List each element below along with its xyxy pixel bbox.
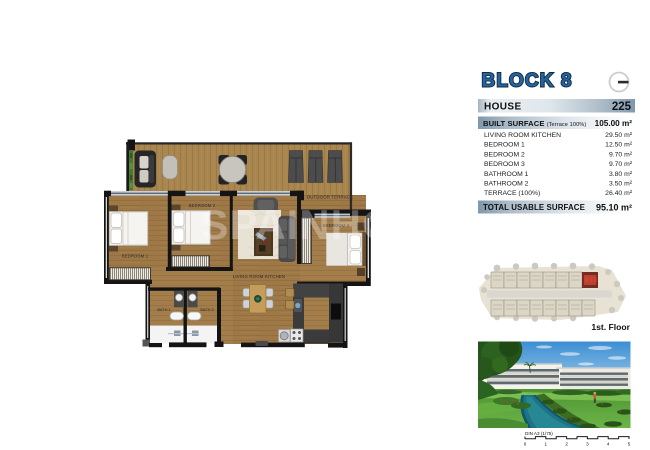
svg-text:OUTDOOR TERRACE: OUTDOOR TERRACE <box>307 195 354 200</box>
svg-text:225: 225 <box>612 101 632 113</box>
svg-text:9.70 m²: 9.70 m² <box>609 151 633 158</box>
svg-text:LIVING ROOM KITCHEN: LIVING ROOM KITCHEN <box>233 274 286 279</box>
svg-text:0: 0 <box>524 442 527 447</box>
svg-text:29.50 m²: 29.50 m² <box>605 132 633 139</box>
svg-text:26.40 m²: 26.40 m² <box>605 190 633 197</box>
svg-text:SPAINHO: SPAINHO <box>200 201 395 248</box>
svg-text:95.10 m²: 95.10 m² <box>596 203 632 213</box>
svg-text:BEDROOM 1: BEDROOM 1 <box>122 254 149 259</box>
svg-text:3.50 m²: 3.50 m² <box>609 181 633 188</box>
svg-text:BATH 2: BATH 2 <box>200 307 213 312</box>
svg-text:3: 3 <box>586 442 589 447</box>
svg-text:9.70 m²: 9.70 m² <box>609 161 633 168</box>
svg-text:BLOCK 8: BLOCK 8 <box>482 71 573 92</box>
svg-text:3.80 m²: 3.80 m² <box>609 171 633 178</box>
svg-text:BATH 1: BATH 1 <box>157 307 170 312</box>
svg-text:BEDROOM 1: BEDROOM 1 <box>484 142 525 149</box>
svg-text:4: 4 <box>607 442 610 447</box>
svg-text:LIVING ROOM KITCHEN: LIVING ROOM KITCHEN <box>484 132 561 139</box>
svg-text:1st. Floor: 1st. Floor <box>591 322 630 332</box>
svg-text:TERRACE (100%): TERRACE (100%) <box>484 190 540 197</box>
svg-text:BEDROOM 3: BEDROOM 3 <box>484 161 525 168</box>
svg-text:1: 1 <box>545 442 548 447</box>
svg-text:2: 2 <box>565 442 568 447</box>
svg-text:DIN A3 (1/75): DIN A3 (1/75) <box>525 431 553 436</box>
svg-text:105.00 m²: 105.00 m² <box>595 119 633 128</box>
svg-text:TOTAL USABLE SURFACE: TOTAL USABLE SURFACE <box>483 203 585 212</box>
svg-text:BATHROOM 1: BATHROOM 1 <box>484 171 529 178</box>
svg-text:HOUSE: HOUSE <box>484 102 522 113</box>
svg-text:5: 5 <box>628 442 631 447</box>
svg-text:12.50 m²: 12.50 m² <box>605 142 633 149</box>
svg-text:BEDROOM 2: BEDROOM 2 <box>484 151 525 158</box>
svg-text:BATHROOM 2: BATHROOM 2 <box>484 181 529 188</box>
